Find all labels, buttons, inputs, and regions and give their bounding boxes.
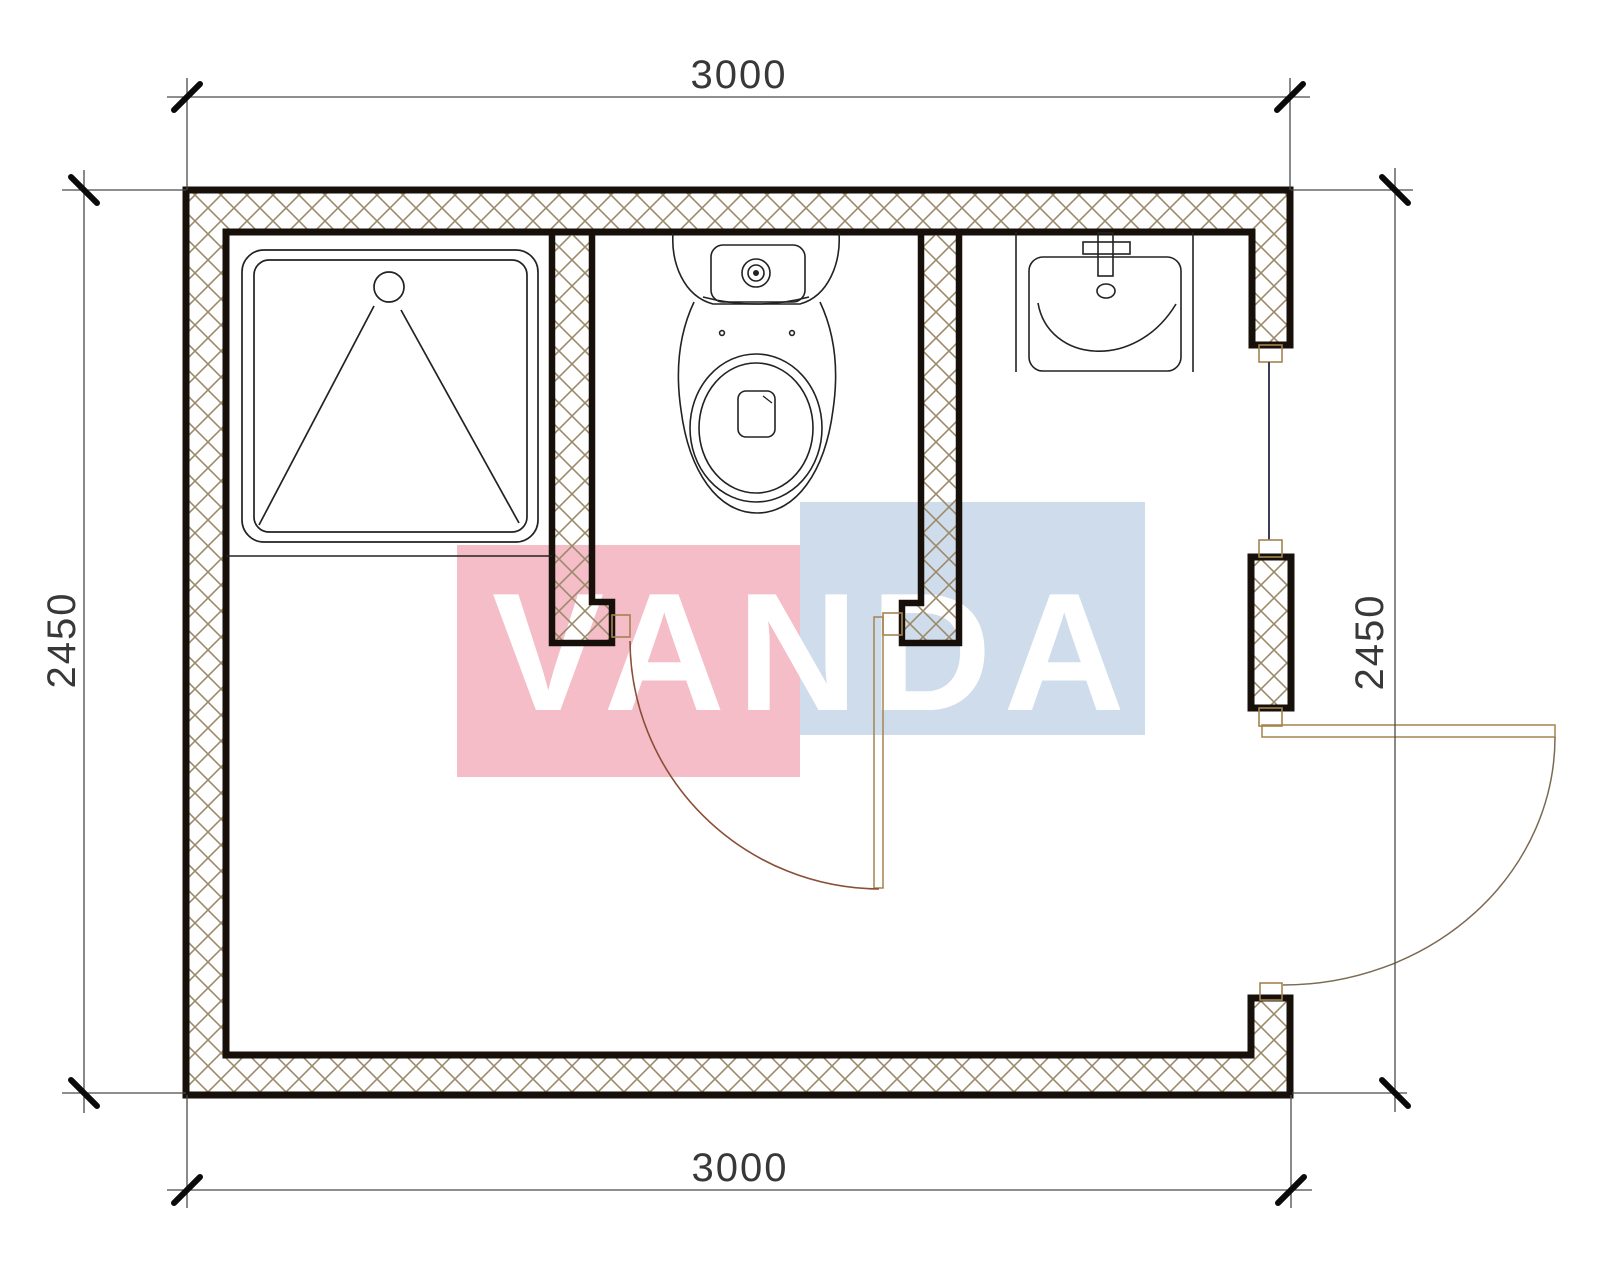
toilet-flush-hole <box>738 391 775 437</box>
dimension-label-left: 2450 <box>42 592 82 689</box>
entrance-door <box>1259 708 1555 1000</box>
interior-door <box>612 613 902 889</box>
floor-plan-page: VANDA <box>0 0 1600 1280</box>
window-pier-wall <box>1251 557 1291 708</box>
dimension-label-top: 3000 <box>691 55 788 95</box>
window-icon <box>1259 345 1282 557</box>
partition-toilet-sink <box>902 232 959 643</box>
entrance-door-leaf <box>1262 725 1555 737</box>
faucet-crossbar <box>1083 242 1130 254</box>
washbasin-basin-curve <box>1038 303 1176 351</box>
toilet <box>673 233 839 513</box>
partition-shower-toilet <box>552 232 612 643</box>
entrance-door-swing-arc <box>1283 737 1555 985</box>
dimension-lines <box>62 78 1413 1208</box>
dimension-label-right: 2450 <box>1350 594 1390 691</box>
toilet-tank-outline <box>673 233 839 304</box>
dimension-ticks <box>71 84 1408 1203</box>
interior-door-leaf <box>874 617 883 888</box>
shower-tray <box>226 250 552 556</box>
toilet-seat-outer <box>690 354 822 502</box>
dimension-label-bottom: 3000 <box>692 1148 789 1188</box>
washbasin-bowl <box>1029 257 1181 371</box>
outer-walls <box>186 190 1291 1095</box>
washbasin-drain <box>1097 284 1115 298</box>
toilet-seat-inner <box>699 363 813 493</box>
washbasin <box>1016 232 1193 372</box>
interior-door-swing-arc <box>630 641 879 889</box>
